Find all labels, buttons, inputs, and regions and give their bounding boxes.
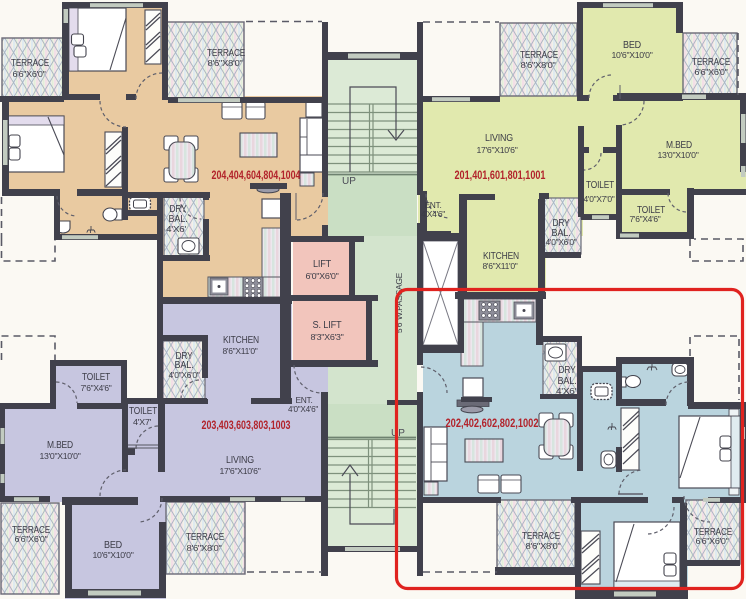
svg-text:6'6"X6'0": 6'6"X6'0" [15,534,48,544]
svg-text:6'6"X6'0": 6'6"X6'0" [696,536,729,546]
svg-text:8'6"X8'0": 8'6"X8'0" [526,541,561,551]
svg-text:KITCHEN: KITCHEN [223,335,259,346]
svg-text:6'6"X6'0": 6'6"X6'0" [13,69,46,79]
svg-text:LIFT: LIFT [313,259,331,270]
svg-text:TERRACE: TERRACE [186,532,224,543]
svg-text:204,404,604,804,1004: 204,404,604,804,1004 [212,170,301,182]
svg-text:10'6"X10'0": 10'6"X10'0" [612,50,653,60]
svg-text:201,401,601,801,1001: 201,401,601,801,1001 [455,170,546,182]
svg-text:4'X4'6": 4'X4'6" [421,209,445,219]
svg-text:4'X6': 4'X6' [556,386,577,396]
svg-text:TERRACE: TERRACE [11,58,49,69]
svg-text:8'6"X11'0": 8'6"X11'0" [223,346,258,356]
svg-text:4'0"X6'0": 4'0"X6'0" [546,237,577,247]
svg-text:S. LIFT: S. LIFT [313,320,342,331]
svg-text:UP: UP [391,428,405,439]
svg-text:13'0"X10'0": 13'0"X10'0" [40,451,81,461]
svg-text:203,403,603,803,1003: 203,403,603,803,1003 [202,420,291,432]
svg-text:6'6"X6'0": 6'6"X6'0" [695,67,728,77]
svg-text:DRY: DRY [559,365,576,376]
svg-text:8'6"X8'0": 8'6"X8'0" [521,60,556,70]
svg-text:8'6"X8'0": 8'6"X8'0" [187,543,222,553]
svg-text:M.BED: M.BED [47,440,73,451]
svg-text:TOILET: TOILET [82,372,110,383]
svg-text:TOILET: TOILET [129,406,157,417]
svg-text:LIVING: LIVING [226,455,254,466]
svg-text:6'0"X6'0": 6'0"X6'0" [306,271,339,281]
svg-text:UP: UP [342,176,356,187]
svg-text:17'6"X10'6": 17'6"X10'6" [220,466,261,476]
svg-text:8'3"X6'3": 8'3"X6'3" [311,332,344,342]
svg-text:7'6"X4'6": 7'6"X4'6" [630,214,661,224]
svg-text:4'0"X6'0": 4'0"X6'0" [169,370,200,380]
svg-text:TOILET: TOILET [586,180,614,191]
svg-text:17'6"X10'6": 17'6"X10'6" [477,145,518,155]
svg-text:LIVING: LIVING [485,133,513,144]
svg-text:10'6"X10'0": 10'6"X10'0" [93,550,134,560]
svg-text:8'6"X11'0": 8'6"X11'0" [483,261,518,271]
svg-text:13'0"X10'0": 13'0"X10'0" [658,150,699,160]
svg-text:4'0"X7'0": 4'0"X7'0" [584,194,615,204]
svg-text:7'6"X4'6": 7'6"X4'6" [81,383,112,393]
svg-text:4'0"X4'6": 4'0"X4'6" [288,404,318,414]
svg-text:202,402,602,802,1002: 202,402,602,802,1002 [446,418,539,430]
svg-text:4'X6': 4'X6' [166,224,187,234]
svg-text:4'X7': 4'X7' [133,417,152,427]
svg-text:8'6"X8'0": 8'6"X8'0" [208,58,243,68]
